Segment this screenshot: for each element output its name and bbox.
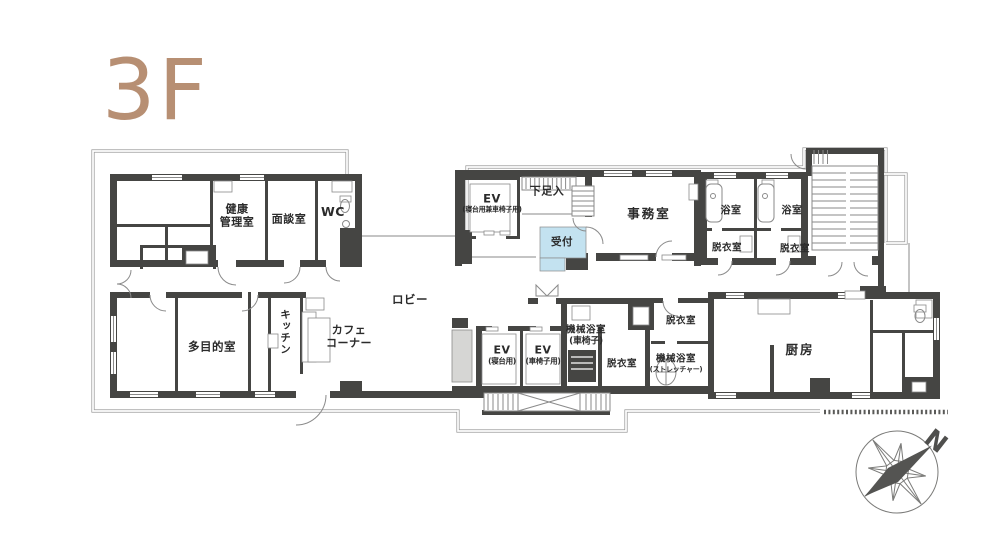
room-label-machine-bath-wheelchair-sub: (車椅子)	[569, 336, 603, 346]
door-arc	[828, 262, 842, 276]
wall-segment	[110, 174, 362, 181]
wall-segment	[722, 228, 754, 231]
fixture	[912, 382, 926, 392]
room-label-bath-1: 浴室	[721, 205, 742, 217]
door-arc	[547, 285, 558, 296]
room-label-cafe-corner: カフェ コーナー	[326, 324, 372, 349]
room-label-shoe-storage: 下足入	[530, 186, 565, 199]
fixture	[306, 298, 324, 310]
shaft	[452, 330, 472, 382]
room-label-dressing-4: 脱衣室	[607, 360, 637, 371]
room-label-kitchen: 厨房	[785, 343, 814, 357]
room-label-elevator-main-sub: (寝台用兼車椅子用)	[462, 206, 521, 214]
room-label-lobby: ロビー	[392, 293, 428, 306]
wall-segment	[110, 292, 117, 398]
reception-counter	[540, 258, 565, 271]
fixture	[620, 255, 648, 260]
wall-segment	[476, 326, 482, 392]
fixture	[662, 255, 686, 260]
wall-segment	[902, 333, 905, 392]
wall-segment	[300, 260, 326, 267]
door-arc	[117, 270, 131, 284]
room-label-elevator-wheelchair-title: EV	[534, 344, 551, 357]
fixture	[332, 181, 352, 192]
wall-segment	[315, 181, 318, 260]
fixture	[186, 251, 208, 264]
door-arc	[718, 261, 732, 275]
sink	[343, 221, 350, 228]
door-arc	[326, 267, 340, 281]
wall-segment	[117, 224, 211, 227]
wall-segment	[806, 256, 816, 265]
room-label-multipurpose: 多目的室	[188, 340, 236, 353]
room-label-dressing-3: 脱衣室	[666, 317, 696, 328]
door-arc	[284, 267, 300, 283]
wall-segment	[462, 236, 476, 239]
floorplan-drawing	[0, 0, 1000, 560]
fixture	[486, 327, 498, 331]
fixture	[845, 291, 865, 299]
room-label-elevator-bed-title: EV	[493, 344, 510, 357]
wall-segment	[878, 268, 884, 293]
wall-segment	[732, 258, 776, 265]
door-arc	[663, 301, 678, 316]
wall-segment	[708, 296, 714, 396]
bathtub	[758, 184, 774, 222]
fixture	[914, 305, 926, 312]
wall-segment	[872, 256, 884, 265]
wall-segment	[703, 228, 712, 231]
wall-segment	[870, 330, 936, 333]
floorplan-page: 3F 健康 管理室 面談室 WC 多目的室 キッチン カフェ コーナー ロビー …	[0, 0, 1000, 560]
fixture	[689, 184, 698, 200]
door-arc	[218, 267, 236, 285]
door-arc	[150, 295, 166, 311]
wall-segment	[140, 245, 216, 248]
wall-segment	[236, 260, 284, 267]
fixture	[572, 306, 590, 320]
room-label-elevator-bed: EV (寝台用)	[488, 344, 516, 365]
fixture	[758, 299, 790, 314]
wall-segment	[806, 148, 884, 154]
wall-segment	[520, 331, 523, 392]
room-label-machine-bath-stretcher-sub: (ストレッチャー)	[650, 365, 703, 373]
room-label-machine-bath-stretcher: 機械浴室 (ストレッチャー)	[650, 355, 703, 374]
room-label-reception: 受付	[551, 236, 573, 248]
room-label-machine-bath-stretcher-title: 機械浴室	[656, 355, 696, 366]
wall-segment	[213, 245, 216, 269]
room-label-bath-2: 浴室	[782, 205, 803, 217]
wall-segment	[878, 154, 884, 268]
wall-segment	[175, 292, 178, 391]
wall-segment	[870, 300, 873, 392]
wall-segment	[568, 350, 596, 382]
wall-segment	[651, 341, 665, 344]
wall-segment	[754, 179, 757, 259]
wall-segment	[110, 174, 117, 266]
room-label-machine-bath-wheelchair-title: 機械浴室	[566, 325, 606, 336]
fixture	[633, 307, 649, 325]
wall-segment	[462, 177, 520, 180]
fixture	[530, 327, 542, 331]
wall-segment	[770, 345, 774, 395]
room-label-machine-bath-wheelchair: 機械浴室 (車椅子)	[566, 325, 606, 346]
room-label-kitchenette: キッチン	[279, 309, 291, 355]
wall-segment	[806, 148, 812, 176]
wall-segment	[810, 378, 830, 394]
fixture	[500, 231, 510, 235]
room-label-interview: 面談室	[272, 214, 307, 227]
door-arc	[776, 261, 790, 275]
wall-segment	[140, 245, 143, 269]
room-label-dressing-1: 脱衣室	[712, 244, 742, 255]
wall-segment	[506, 236, 520, 239]
door-arc	[586, 227, 603, 244]
room-label-wc: WC	[321, 205, 345, 219]
room-label-health-management: 健康 管理室	[220, 203, 255, 228]
room-label-elevator-wheelchair: EV (車椅子用)	[525, 344, 560, 365]
room-label-elevator-wheelchair-sub: (車椅子用)	[525, 357, 560, 366]
wall-segment	[165, 224, 168, 260]
fixture	[484, 231, 494, 235]
fixture	[214, 181, 232, 192]
wall-segment	[340, 260, 362, 267]
wall-segment	[678, 298, 712, 303]
wall-segment	[258, 292, 306, 298]
wall-segment	[340, 381, 362, 391]
wall-segment	[757, 228, 771, 231]
room-label-elevator-bed-sub: (寝台用)	[488, 357, 516, 366]
room-label-dressing-2: 脱衣室	[780, 245, 810, 256]
fixture	[268, 334, 278, 348]
wall-segment	[677, 341, 712, 344]
wall-segment	[528, 298, 538, 304]
wall-segment	[265, 181, 268, 260]
room-label-office: 事務室	[627, 207, 671, 221]
wall-segment	[248, 292, 251, 391]
wall-segment	[452, 318, 468, 328]
room-label-elevator-main-title: EV	[483, 192, 501, 205]
wall-segment	[340, 228, 362, 264]
room-label-elevator-main: EV (寝台用兼車椅子用)	[462, 192, 521, 213]
door-arc	[536, 285, 547, 296]
door-arc	[854, 262, 868, 276]
wall-segment	[781, 228, 801, 231]
